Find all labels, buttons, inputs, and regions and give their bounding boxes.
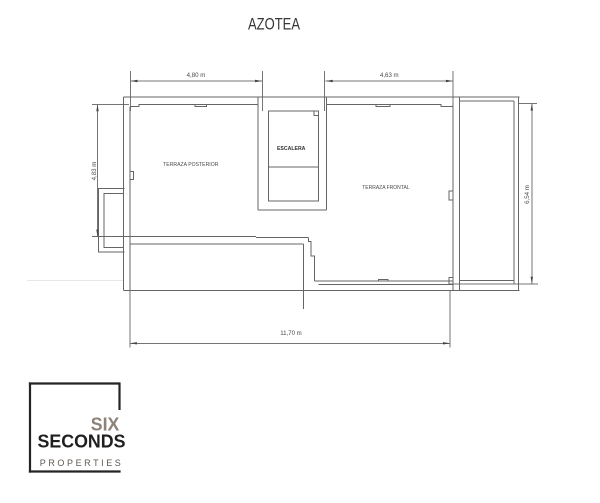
svg-text:PROPERTIES: PROPERTIES bbox=[40, 458, 121, 468]
svg-text:TERRAZA POSTERIOR: TERRAZA POSTERIOR bbox=[163, 162, 218, 168]
svg-text:ESCALERA: ESCALERA bbox=[277, 146, 306, 152]
svg-text:11,70 m: 11,70 m bbox=[280, 330, 302, 337]
svg-text:AZOTEA: AZOTEA bbox=[248, 15, 300, 34]
svg-text:SECONDS: SECONDS bbox=[38, 430, 126, 451]
svg-text:TERRAZA FRONTAL: TERRAZA FRONTAL bbox=[362, 185, 409, 191]
svg-text:4,80 m: 4,80 m bbox=[187, 72, 206, 79]
svg-text:4,63 m: 4,63 m bbox=[380, 72, 399, 79]
svg-text:6,54 m: 6,54 m bbox=[524, 185, 531, 204]
svg-text:4,83 m: 4,83 m bbox=[91, 162, 98, 181]
